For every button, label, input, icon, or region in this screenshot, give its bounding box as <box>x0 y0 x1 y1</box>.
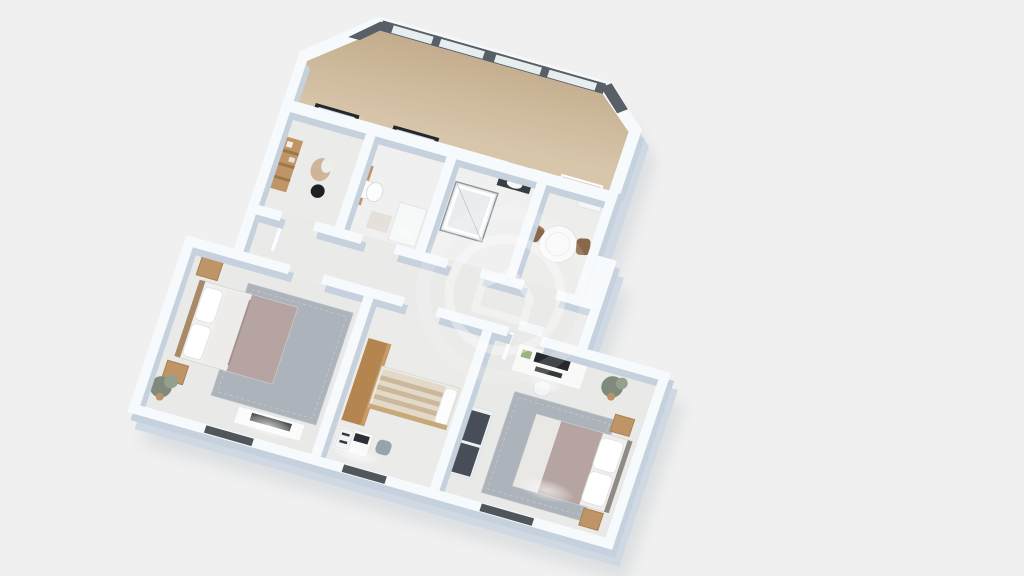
floorplan-3d-canvas[interactable] <box>0 0 1024 576</box>
